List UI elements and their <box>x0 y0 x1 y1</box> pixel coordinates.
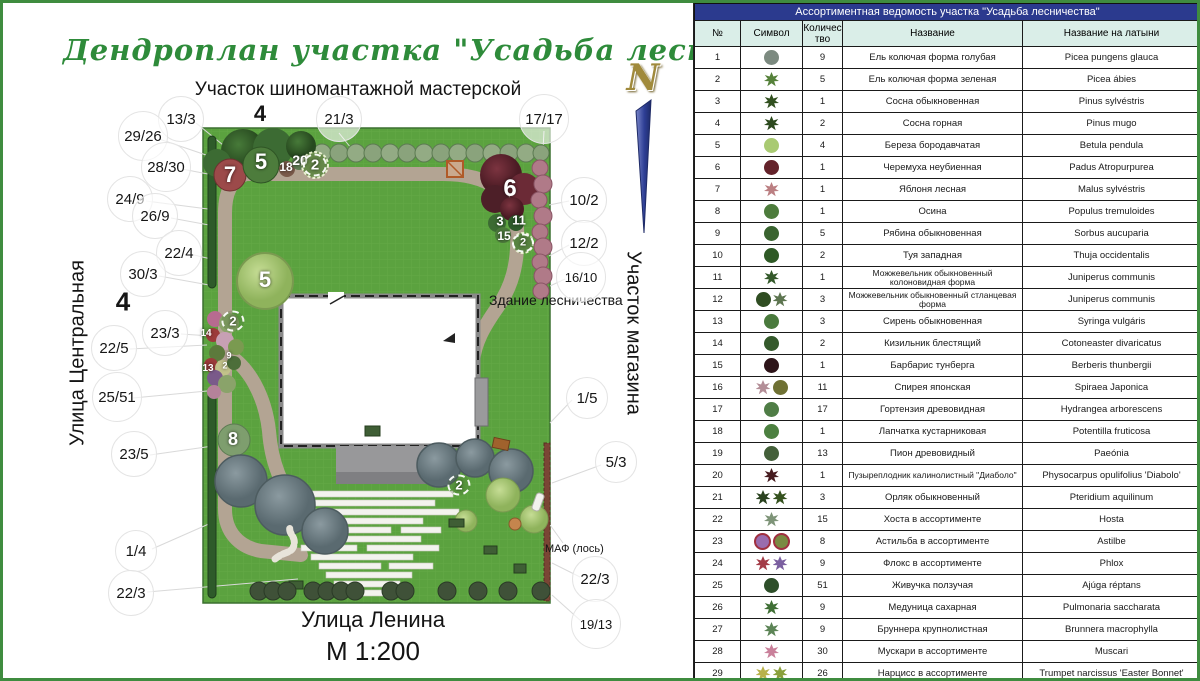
cell-latin: Phlox <box>1023 553 1200 575</box>
plan-plant-number: 15 <box>497 230 510 242</box>
plan-callout: 4 <box>116 287 130 318</box>
plan-subtitle: Участок шиномантажной мастерской <box>143 79 573 101</box>
plan-title: Дендроплан участка "Усадьба лесничества" <box>63 33 643 67</box>
cell-latin: Picea ábies <box>1023 69 1200 91</box>
cell-name: Мускари в ассортименте <box>843 641 1023 663</box>
cell-quantity: 3 <box>803 311 843 333</box>
cell-symbol <box>741 223 803 245</box>
plan-callout: 19/13 <box>571 599 621 649</box>
plant-symbol-icon <box>764 336 779 351</box>
cell-quantity: 1 <box>803 421 843 443</box>
cell-latin: Pteridium aquilinum <box>1023 487 1200 509</box>
cell-name: Бруннера крупнолистная <box>843 619 1023 641</box>
plant-symbol-icon <box>756 292 771 307</box>
cell-number: 11 <box>695 267 741 289</box>
cell-symbol <box>741 289 803 311</box>
cell-name: Медуница сахарная <box>843 597 1023 619</box>
cell-symbol <box>741 245 803 267</box>
plant-symbol-icon <box>764 600 779 615</box>
cell-number: 9 <box>695 223 741 245</box>
table-row: 238Астильба в ассортиментеAstilbe <box>695 531 1200 553</box>
street-bottom-label: Улица Ленина <box>248 607 498 633</box>
plant-symbol-icon <box>773 490 788 505</box>
plant-symbol-icon <box>764 270 779 285</box>
scale-label: М 1:200 <box>248 636 498 667</box>
cell-name: Орляк обыкновенный <box>843 487 1023 509</box>
cell-name: Сирень обыкновенная <box>843 311 1023 333</box>
cell-name: Яблоня лесная <box>843 179 1023 201</box>
cell-quantity: 1 <box>803 355 843 377</box>
maf-label: МАФ (лось) <box>545 543 604 555</box>
plant-symbol-icon <box>764 50 779 65</box>
cell-quantity: 11 <box>803 377 843 399</box>
cell-number: 28 <box>695 641 741 663</box>
cell-name: Спирея японская <box>843 377 1023 399</box>
cell-quantity: 4 <box>803 135 843 157</box>
cell-quantity: 1 <box>803 267 843 289</box>
cell-latin: Ajúga réptans <box>1023 575 1200 597</box>
cell-number: 1 <box>695 47 741 69</box>
plant-symbol-icon <box>764 160 779 175</box>
cell-symbol <box>741 553 803 575</box>
plan-panel: Дендроплан участка "Усадьба лесничества"… <box>3 3 693 678</box>
cell-symbol <box>741 135 803 157</box>
table-row: 54Береза бородавчатаяBetula pendula <box>695 135 1200 157</box>
plan-plant-number: 2 <box>222 362 227 371</box>
table-title: Ассортиментная ведомость участка "Усадьб… <box>694 3 1200 20</box>
plant-symbol-icon <box>764 182 779 197</box>
table-row: 269Медуница сахарнаяPulmonaria saccharat… <box>695 597 1200 619</box>
area-right-label: Участок магазина <box>622 251 645 415</box>
cell-latin: Betula pendula <box>1023 135 1200 157</box>
cell-symbol <box>741 267 803 289</box>
cell-latin: Physocarpus opulifolius 'Diabolo' <box>1023 465 1200 487</box>
cell-quantity: 3 <box>803 289 843 311</box>
table-row: 279Бруннера крупнолистнаяBrunnera macrop… <box>695 619 1200 641</box>
cell-name: Ель колючая форма голубая <box>843 47 1023 69</box>
plant-symbol-icon <box>773 380 788 395</box>
cell-quantity: 1 <box>803 465 843 487</box>
cell-number: 15 <box>695 355 741 377</box>
plant-symbol-icon <box>764 138 779 153</box>
plan-plant-number: 3 <box>496 215 503 228</box>
assortment-table: № Символ Количество Название Название на… <box>694 20 1200 681</box>
cell-quantity: 2 <box>803 113 843 135</box>
cell-symbol <box>741 597 803 619</box>
cell-symbol <box>741 47 803 69</box>
cell-quantity: 1 <box>803 157 843 179</box>
cell-name: Хоста в ассортименте <box>843 509 1023 531</box>
cell-quantity: 9 <box>803 619 843 641</box>
table-row: 133Сирень обыкновеннаяSyringa vulgáris <box>695 311 1200 333</box>
plant-symbol-icon <box>764 358 779 373</box>
cell-name: Можжевельник обыкновенный стланцевая фор… <box>843 289 1023 311</box>
cell-symbol <box>741 443 803 465</box>
table-row: 1717Гортензия древовиднаяHydrangea arbor… <box>695 399 1200 421</box>
plan-plant-number: 2 <box>447 475 470 496</box>
table-row: 1913Пион древовидныйPaeónia <box>695 443 1200 465</box>
plan-plant-number: 2 <box>221 311 244 332</box>
table-row: 25Ель колючая форма зеленаяPicea ábies <box>695 69 1200 91</box>
cell-number: 23 <box>695 531 741 553</box>
cell-number: 13 <box>695 311 741 333</box>
cell-name: Флокс в ассортименте <box>843 553 1023 575</box>
cell-quantity: 2 <box>803 245 843 267</box>
plant-symbol-icon <box>764 644 779 659</box>
table-row: 123Можжевельник обыкновенный стланцевая … <box>695 289 1200 311</box>
cell-symbol <box>741 69 803 91</box>
cell-name: Береза бородавчатая <box>843 135 1023 157</box>
cell-number: 5 <box>695 135 741 157</box>
plant-symbol-icon <box>764 468 779 483</box>
plan-callout: 1/4 <box>115 530 157 572</box>
plan-callout: 1/5 <box>566 377 608 419</box>
plant-symbol-icon <box>764 578 779 593</box>
cell-name: Пузыреплодник калинолистный "Диаболо" <box>843 465 1023 487</box>
cell-number: 26 <box>695 597 741 619</box>
plan-plant-number: 13 <box>202 364 213 374</box>
plant-symbol-icon <box>764 512 779 527</box>
table-row: 249Флокс в ассортиментеPhlox <box>695 553 1200 575</box>
plan-callout: 23/5 <box>111 431 157 477</box>
cell-latin: Syringa vulgáris <box>1023 311 1200 333</box>
cell-number: 22 <box>695 509 741 531</box>
cell-name: Осина <box>843 201 1023 223</box>
cell-symbol <box>741 157 803 179</box>
col-number: № <box>695 21 741 47</box>
plant-symbol-icon <box>764 94 779 109</box>
cell-number: 10 <box>695 245 741 267</box>
cell-name: Пион древовидный <box>843 443 1023 465</box>
plant-symbol-icon <box>756 556 771 571</box>
plan-plant-number: 14 <box>200 329 211 339</box>
cell-symbol <box>741 663 803 681</box>
cell-quantity: 3 <box>803 487 843 509</box>
cell-symbol <box>741 311 803 333</box>
cell-quantity: 51 <box>803 575 843 597</box>
cell-latin: Cotoneaster divaricatus <box>1023 333 1200 355</box>
table-row: 61Черемуха неубиеннаяPadus Atropurpurea <box>695 157 1200 179</box>
cell-latin: Populus tremuloides <box>1023 201 1200 223</box>
cell-name: Лапчатка кустарниковая <box>843 421 1023 443</box>
cell-name: Рябина обыкновенная <box>843 223 1023 245</box>
cell-quantity: 13 <box>803 443 843 465</box>
cell-symbol <box>741 399 803 421</box>
cell-name: Сосна обыкновенная <box>843 91 1023 113</box>
cell-latin: Berberis thunbergii <box>1023 355 1200 377</box>
plant-symbol-icon <box>773 556 788 571</box>
plan-callout: 10/2 <box>561 177 607 223</box>
plant-symbol-icon <box>754 533 771 550</box>
cell-latin: Sorbus aucuparia <box>1023 223 1200 245</box>
table-row: 2830Мускари в ассортиментеMuscari <box>695 641 1200 663</box>
cell-quantity: 1 <box>803 91 843 113</box>
cell-number: 17 <box>695 399 741 421</box>
cell-quantity: 30 <box>803 641 843 663</box>
table-row: 71Яблоня леснаяMalus sylvéstris <box>695 179 1200 201</box>
north-label: N <box>627 57 660 99</box>
plant-symbol-icon <box>773 666 788 681</box>
plan-callout: 16/10 <box>556 252 606 302</box>
cell-latin: Thuja occidentalis <box>1023 245 1200 267</box>
street-left-label: Улица Центральная <box>67 260 90 446</box>
table-row: 2551Живучка ползучаяAjúga réptans <box>695 575 1200 597</box>
plant-symbol-icon <box>764 72 779 87</box>
plant-symbol-icon <box>756 380 771 395</box>
assortment-table-panel: Ассортиментная ведомость участка "Усадьб… <box>693 3 1200 678</box>
cell-number: 14 <box>695 333 741 355</box>
north-arrow <box>636 100 651 233</box>
cell-quantity: 1 <box>803 201 843 223</box>
plan-callout: 22/3 <box>572 556 618 602</box>
cell-number: 6 <box>695 157 741 179</box>
cell-latin: Pinus mugo <box>1023 113 1200 135</box>
plant-symbol-icon <box>756 490 771 505</box>
plant-symbol-icon <box>764 226 779 241</box>
cell-number: 18 <box>695 421 741 443</box>
cell-quantity: 8 <box>803 531 843 553</box>
cell-latin: Malus sylvéstris <box>1023 179 1200 201</box>
cell-name: Сосна горная <box>843 113 1023 135</box>
plant-symbol-icon <box>764 402 779 417</box>
plan-plant-number: 6 <box>503 177 516 201</box>
cell-quantity: 5 <box>803 69 843 91</box>
plan-callout: 5/3 <box>595 441 637 483</box>
cell-latin: Trumpet narcissus 'Easter Bonnet' <box>1023 663 1200 681</box>
cell-name: Туя западная <box>843 245 1023 267</box>
cell-symbol <box>741 421 803 443</box>
plan-callout: 21/3 <box>316 96 362 142</box>
cell-latin: Pulmonaria saccharata <box>1023 597 1200 619</box>
cell-quantity: 15 <box>803 509 843 531</box>
cell-symbol <box>741 575 803 597</box>
cell-latin: Paeónia <box>1023 443 1200 465</box>
cell-symbol <box>741 377 803 399</box>
plant-symbol-icon <box>764 248 779 263</box>
cell-symbol <box>741 201 803 223</box>
plant-symbol-icon <box>764 424 779 439</box>
cell-name: Живучка ползучая <box>843 575 1023 597</box>
plan-callout: 23/3 <box>142 310 188 356</box>
cell-number: 19 <box>695 443 741 465</box>
cell-latin: Spiraea Japonica <box>1023 377 1200 399</box>
cell-symbol <box>741 487 803 509</box>
plan-callout: 22/3 <box>108 570 154 616</box>
cell-number: 29 <box>695 663 741 681</box>
plan-callout: 17/17 <box>519 94 569 144</box>
table-row: 181Лапчатка кустарниковаяPotentilla frut… <box>695 421 1200 443</box>
plan-plant-number: 5 <box>259 269 271 291</box>
cell-number: 4 <box>695 113 741 135</box>
cell-quantity: 9 <box>803 553 843 575</box>
cell-name: Гортензия древовидная <box>843 399 1023 421</box>
plant-symbol-icon <box>764 314 779 329</box>
dendroplan-document: Дендроплан участка "Усадьба лесничества"… <box>0 0 1200 681</box>
cell-symbol <box>741 509 803 531</box>
plan-plant-number: 18 <box>279 161 292 173</box>
cell-symbol <box>741 113 803 135</box>
plan-plant-number: 11 <box>512 214 526 227</box>
plan-plant-number: 2 <box>512 234 534 253</box>
cell-number: 3 <box>695 91 741 113</box>
plan-callout: 22/5 <box>91 325 137 371</box>
cell-name: Барбарис тунберга <box>843 355 1023 377</box>
cell-symbol <box>741 641 803 663</box>
cell-name: Черемуха неубиенная <box>843 157 1023 179</box>
building-label: Здание лесничества <box>489 292 623 308</box>
cell-symbol <box>741 619 803 641</box>
cell-number: 24 <box>695 553 741 575</box>
cell-symbol <box>741 333 803 355</box>
table-row: 31Сосна обыкновеннаяPinus sylvéstris <box>695 91 1200 113</box>
cell-latin: Astilbe <box>1023 531 1200 553</box>
cell-quantity: 9 <box>803 597 843 619</box>
cell-symbol <box>741 465 803 487</box>
cell-number: 16 <box>695 377 741 399</box>
table-row: 213Орляк обыкновенныйPteridium aquilinum <box>695 487 1200 509</box>
cell-latin: Juniperus communis <box>1023 267 1200 289</box>
cell-latin: Brunnera macrophylla <box>1023 619 1200 641</box>
cell-symbol <box>741 179 803 201</box>
plant-symbol-icon <box>773 533 790 550</box>
cell-quantity: 1 <box>803 179 843 201</box>
table-row: 2926Нарцисс в ассортиментеTrumpet narcis… <box>695 663 1200 681</box>
cell-name: Астильба в ассортименте <box>843 531 1023 553</box>
col-symbol: Символ <box>741 21 803 47</box>
col-latin: Название на латыни <box>1023 21 1200 47</box>
cell-name: Кизильник блестящий <box>843 333 1023 355</box>
cell-name: Нарцисс в ассортименте <box>843 663 1023 681</box>
cell-name: Ель колючая форма зеленая <box>843 69 1023 91</box>
cell-quantity: 2 <box>803 333 843 355</box>
table-row: 151Барбарис тунбергаBerberis thunbergii <box>695 355 1200 377</box>
cell-latin: Padus Atropurpurea <box>1023 157 1200 179</box>
table-row: 19Ель колючая форма голубаяPicea pungens… <box>695 47 1200 69</box>
plan-callout: 25/51 <box>92 372 142 422</box>
plant-symbol-icon <box>764 204 779 219</box>
cell-latin: Potentilla fruticosa <box>1023 421 1200 443</box>
cell-symbol <box>741 531 803 553</box>
cell-number: 8 <box>695 201 741 223</box>
cell-symbol <box>741 91 803 113</box>
cell-number: 20 <box>695 465 741 487</box>
table-row: 111Можжевельник обыкновенный колоновидна… <box>695 267 1200 289</box>
table-row: 42Сосна горнаяPinus mugo <box>695 113 1200 135</box>
table-row: 2215Хоста в ассортиментеHosta <box>695 509 1200 531</box>
plant-symbol-icon <box>764 622 779 637</box>
col-name: Название <box>843 21 1023 47</box>
cell-latin: Picea pungens glauca <box>1023 47 1200 69</box>
cell-latin: Hydrangea arborescens <box>1023 399 1200 421</box>
cell-quantity: 5 <box>803 223 843 245</box>
cell-number: 12 <box>695 289 741 311</box>
cell-latin: Pinus sylvéstris <box>1023 91 1200 113</box>
cell-latin: Juniperus communis <box>1023 289 1200 311</box>
plan-plant-number: 5 <box>255 151 267 173</box>
cell-latin: Hosta <box>1023 509 1200 531</box>
plant-symbol-icon <box>756 666 771 681</box>
plan-plant-number: 8 <box>228 430 238 448</box>
cell-quantity: 17 <box>803 399 843 421</box>
cell-number: 25 <box>695 575 741 597</box>
table-header-row: № Символ Количество Название Название на… <box>695 21 1200 47</box>
table-row: 95Рябина обыкновеннаяSorbus aucuparia <box>695 223 1200 245</box>
table-row: 102Туя западнаяThuja occidentalis <box>695 245 1200 267</box>
plan-callout: 4 <box>254 101 266 127</box>
table-row: 81ОсинаPopulus tremuloides <box>695 201 1200 223</box>
table-row: 201Пузыреплодник калинолистный "Диаболо"… <box>695 465 1200 487</box>
cell-number: 7 <box>695 179 741 201</box>
plant-symbol-icon <box>764 116 779 131</box>
cell-number: 21 <box>695 487 741 509</box>
plan-plant-number: 9 <box>226 352 231 361</box>
cell-latin: Muscari <box>1023 641 1200 663</box>
table-row: 142Кизильник блестящийCotoneaster divari… <box>695 333 1200 355</box>
plan-plant-number: 7 <box>224 164 236 186</box>
cell-number: 27 <box>695 619 741 641</box>
plant-symbol-icon <box>773 292 788 307</box>
forestry-building <box>281 292 488 446</box>
table-row: 1611Спирея японскаяSpiraea Japonica <box>695 377 1200 399</box>
cell-symbol <box>741 355 803 377</box>
plant-symbol-icon <box>764 446 779 461</box>
cell-number: 2 <box>695 69 741 91</box>
cell-name: Можжевельник обыкновенный колоновидная ф… <box>843 267 1023 289</box>
cell-quantity: 9 <box>803 47 843 69</box>
col-quantity: Количество <box>803 21 843 47</box>
cell-quantity: 26 <box>803 663 843 681</box>
